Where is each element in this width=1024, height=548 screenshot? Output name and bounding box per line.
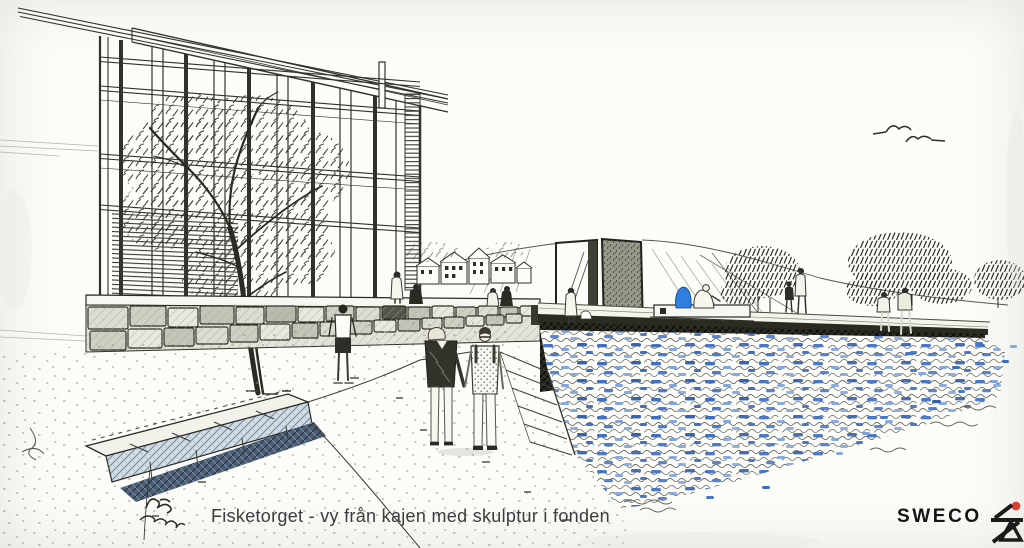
sketch-drawing bbox=[0, 0, 1024, 548]
water bbox=[540, 330, 1017, 512]
rooftop-post bbox=[379, 62, 385, 108]
trees-behind-houses-2 bbox=[486, 242, 526, 258]
sweco-logo: SWECO bbox=[897, 500, 1024, 544]
sketch-page: Fisketorget - vy från kajen med skulptur… bbox=[0, 0, 1024, 548]
sweco-mark-icon bbox=[988, 500, 1024, 544]
bird-icon bbox=[873, 126, 911, 134]
background-bushes bbox=[720, 232, 1024, 312]
bird-icon bbox=[906, 136, 945, 142]
birds bbox=[873, 126, 945, 142]
bench-figures bbox=[675, 285, 720, 308]
sweco-wordmark: SWECO bbox=[897, 506, 982, 528]
trees-behind-houses bbox=[404, 242, 460, 262]
drawing-caption: Fisketorget - vy från kajen med skulptur… bbox=[211, 506, 610, 527]
